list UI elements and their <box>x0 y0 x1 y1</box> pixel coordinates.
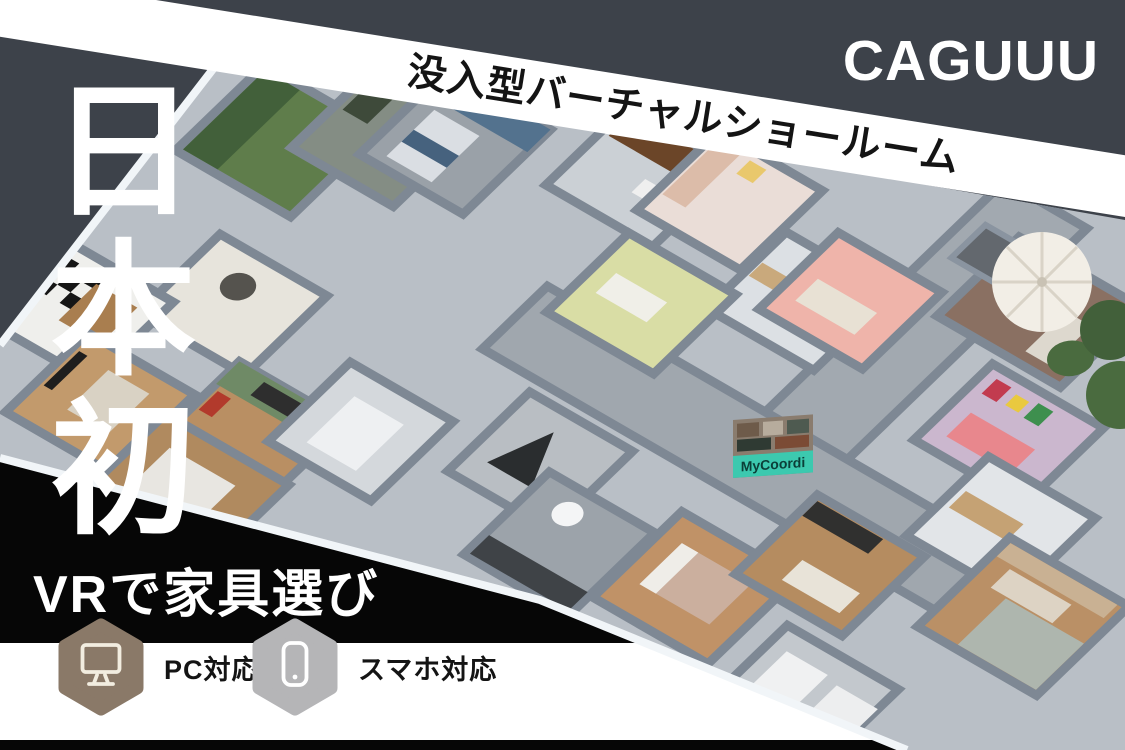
smartphone-badge-hexagon <box>252 618 338 716</box>
umbrella <box>992 232 1092 332</box>
ad-banner: MyCoordi 没入型バーチャルショールーム CAGUUU 日本初 VRで家具… <box>0 0 1125 750</box>
smartphone-badge: スマホ対応 <box>252 618 497 716</box>
pc-badge: PC対応 <box>58 618 260 716</box>
pc-badge-label: PC対応 <box>164 648 260 687</box>
mycoordi-sign: MyCoordi <box>733 414 813 478</box>
smartphone-badge-label: スマホ対応 <box>358 648 497 687</box>
brand-logo: CAGUUU <box>843 28 1099 94</box>
vertical-title: 日本初 <box>38 74 184 551</box>
pc-badge-hexagon <box>58 618 144 716</box>
subtitle: VRで家具選び <box>33 552 379 627</box>
